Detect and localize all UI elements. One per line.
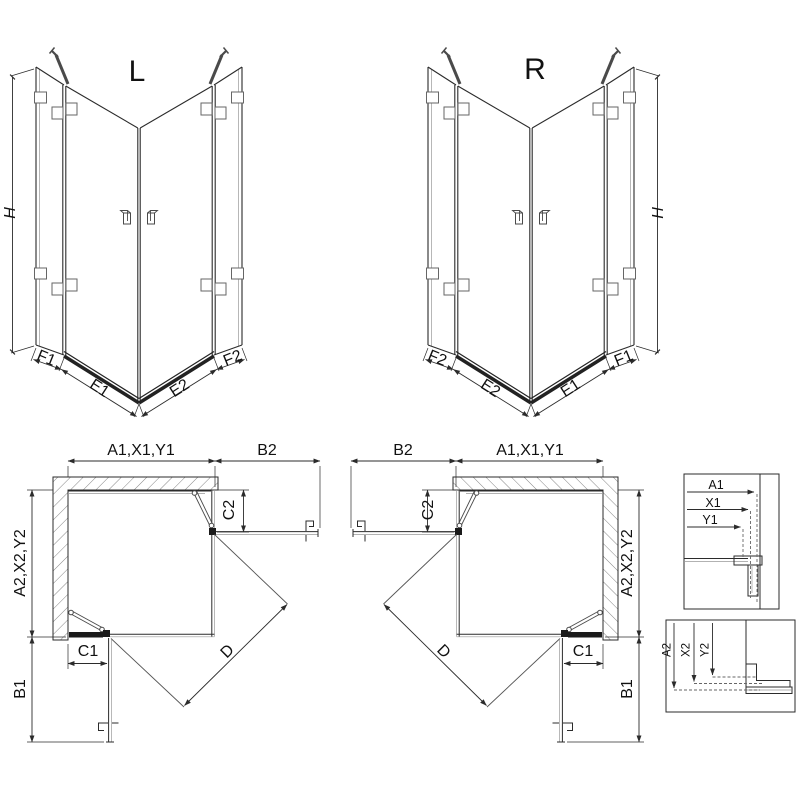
plan-left-dim-c2-label: C2 xyxy=(222,500,238,520)
plan-right-dim-c2-label: C2 xyxy=(421,500,437,520)
iso-right-dim-h-label: H xyxy=(651,207,667,219)
detail-top-dim-y1-label: Y1 xyxy=(702,514,717,527)
plan-right-dim-b1-label: B1 xyxy=(620,679,636,699)
detail-box-bottom-drawing xyxy=(666,620,795,712)
plan-right-dim-depth-label: A2,X2,Y2 xyxy=(620,529,636,597)
plan-right-dim-b2-label: B2 xyxy=(393,443,413,459)
iso-right-title: R xyxy=(524,55,546,85)
detail-bottom-dim-x2-label: X2 xyxy=(681,643,693,657)
detail-bottom-dim-a2-label: A2 xyxy=(662,643,674,657)
detail-top-dim-a1-label: A1 xyxy=(708,479,723,492)
drawing-linework xyxy=(0,0,800,800)
plan-left-dim-c1-label: C1 xyxy=(78,644,98,660)
technical-drawing-canvas: L H F1 E1 E2 F2 R H F2 E2 E1 F1 A1,X1,Y1… xyxy=(0,0,800,800)
detail-top-dim-x1-label: X1 xyxy=(705,497,720,510)
detail-box-top-drawing xyxy=(684,474,779,609)
iso-left-title: L xyxy=(129,57,146,87)
plan-right-dim-width-label: A1,X1,Y1 xyxy=(496,443,564,459)
plan-left-dim-b1-label: B1 xyxy=(13,679,29,699)
plan-view-right-drawing xyxy=(351,461,644,742)
plan-left-dim-b2-label: B2 xyxy=(257,443,277,459)
plan-left-dim-depth-label: A2,X2,Y2 xyxy=(13,529,29,597)
iso-left-dim-h-label: H xyxy=(3,207,19,219)
plan-view-left-drawing xyxy=(27,461,320,742)
plan-left-dim-width-label: A1,X1,Y1 xyxy=(107,443,175,459)
detail-bottom-dim-y2-label: Y2 xyxy=(700,643,712,657)
plan-right-dim-c1-label: C1 xyxy=(573,644,593,660)
